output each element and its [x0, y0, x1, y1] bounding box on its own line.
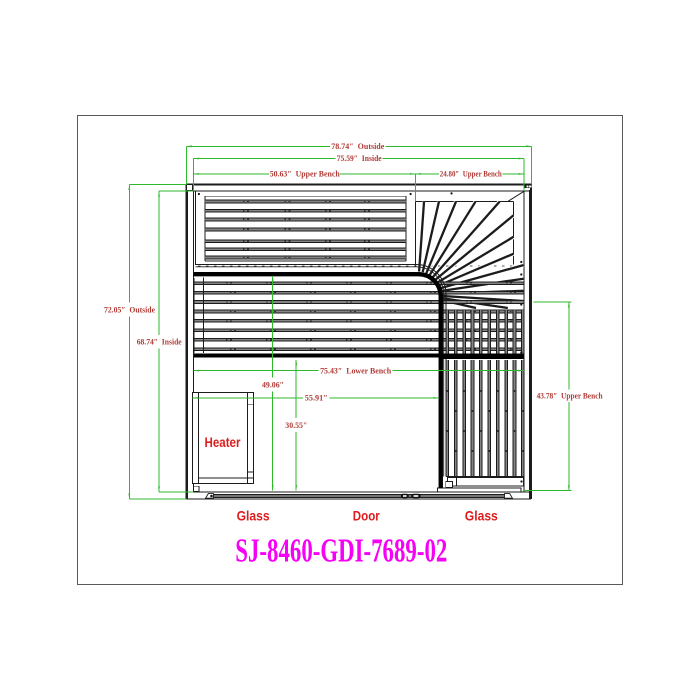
- svg-text:75.59″ Inside: 75.59″ Inside: [337, 154, 382, 163]
- svg-text:68.74″ Inside: 68.74″ Inside: [137, 338, 182, 347]
- svg-text:24.80″ Upper Bench: 24.80″ Upper Bench: [440, 170, 502, 179]
- svg-text:49.06″: 49.06″: [262, 381, 284, 390]
- svg-text:78.74″ Outside: 78.74″ Outside: [331, 142, 384, 151]
- svg-text:43.78″ Upper Bench: 43.78″ Upper Bench: [537, 392, 604, 401]
- svg-text:Glass: Glass: [237, 508, 270, 524]
- svg-text:55.91″: 55.91″: [305, 394, 328, 403]
- svg-text:Door: Door: [353, 508, 380, 524]
- svg-text:SJ-8460-GDI-7689-02: SJ-8460-GDI-7689-02: [235, 533, 447, 570]
- svg-text:30.55″: 30.55″: [285, 421, 307, 430]
- svg-text:72.05″ Outside: 72.05″ Outside: [104, 305, 155, 314]
- svg-text:75.43″ Lower Bench: 75.43″ Lower Bench: [320, 366, 392, 375]
- svg-text:Glass: Glass: [465, 508, 498, 524]
- svg-text:Heater: Heater: [205, 434, 241, 450]
- svg-text:50.63″ Upper Bench: 50.63″ Upper Bench: [270, 170, 341, 179]
